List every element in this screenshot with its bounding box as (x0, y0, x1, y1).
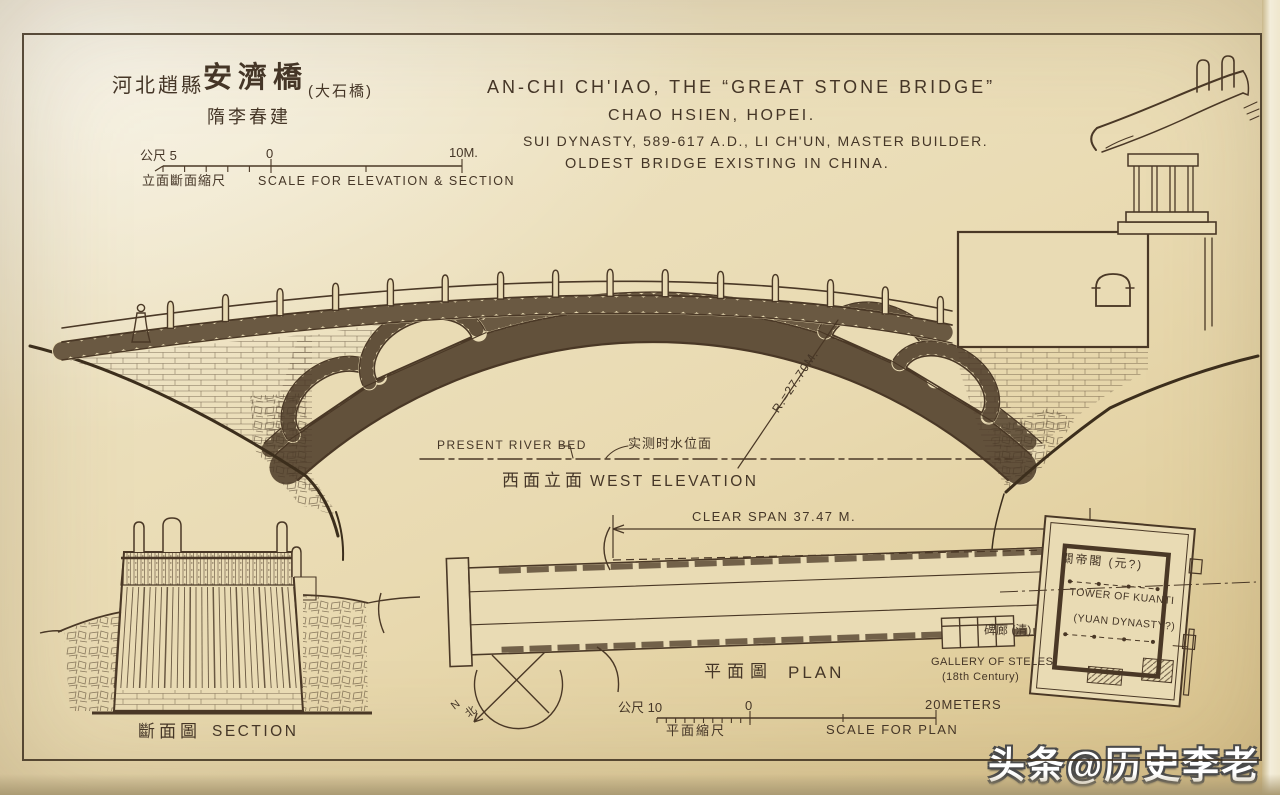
archival-drawing-photo: 河北趙縣 安濟橋 (大石橋) 隋李春建 AN-CHI CH'IAO, THE “… (0, 0, 1280, 795)
page-edge-right (1262, 0, 1280, 795)
border-frame (22, 33, 1262, 761)
page-edge-bottom (0, 774, 1280, 795)
